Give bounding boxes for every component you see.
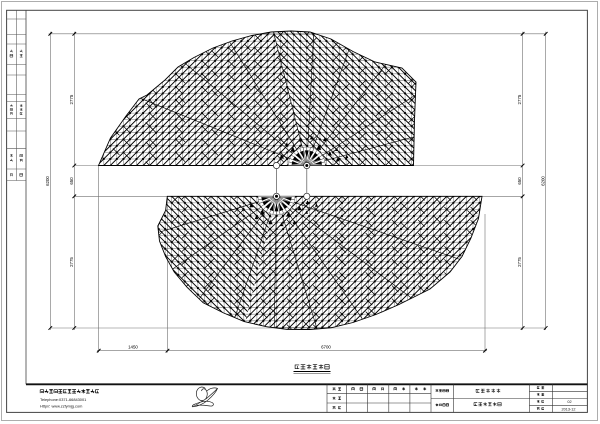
- svg-text:Http//: www.zzfymjg.com: Http//: www.zzfymjg.com: [40, 404, 82, 409]
- svg-text:2775: 2775: [69, 94, 74, 104]
- svg-text:Telephone:0371-66843001: Telephone:0371-66843001: [40, 397, 86, 402]
- svg-text:2013-12: 2013-12: [562, 407, 576, 411]
- svg-text:6200: 6200: [540, 176, 545, 186]
- svg-text:02: 02: [567, 400, 571, 404]
- svg-text:1450: 1450: [128, 345, 138, 350]
- svg-text:2775: 2775: [69, 257, 74, 267]
- svg-text:6700: 6700: [321, 345, 331, 350]
- svg-text:2775: 2775: [517, 257, 522, 267]
- svg-text:650: 650: [69, 177, 74, 185]
- svg-text:650: 650: [517, 177, 522, 185]
- svg-text:2775: 2775: [517, 94, 522, 104]
- svg-text:6200: 6200: [45, 176, 50, 186]
